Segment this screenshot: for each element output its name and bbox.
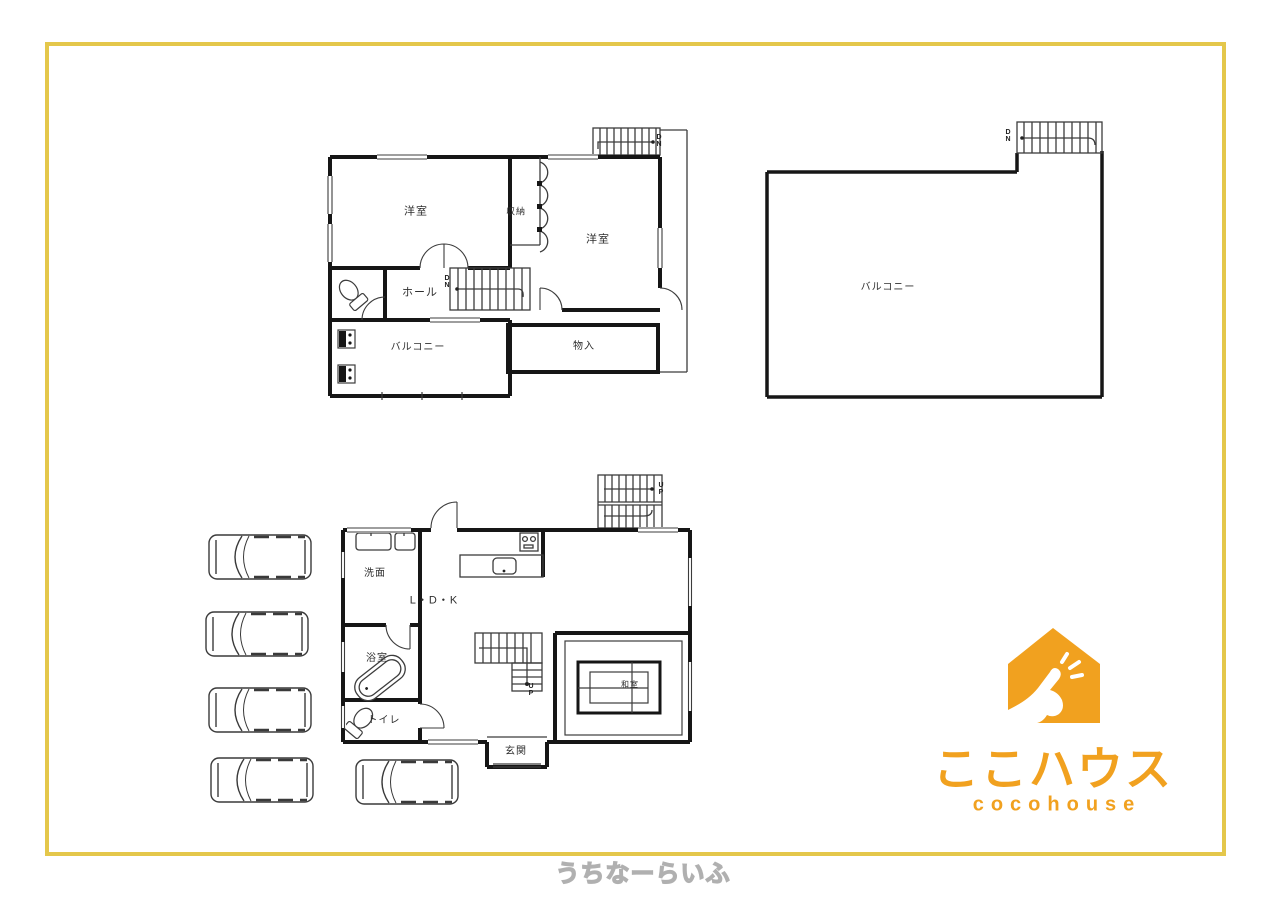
label-stairs-up-external-1f: UP — [658, 482, 665, 496]
logo-name-japanese: ここハウス — [933, 733, 1173, 799]
car — [356, 760, 458, 804]
label-toilet-1f: トイレ — [368, 716, 401, 726]
second-floor-plan — [322, 118, 694, 410]
label-bedroom-b-2f: 洋室 — [586, 235, 610, 246]
parking-cars — [200, 528, 470, 813]
label-stairs-dn-external-2f: DN — [656, 134, 663, 148]
car — [206, 612, 308, 656]
logo-house-click-icon — [1000, 622, 1110, 730]
label-storage-2f: 物入 — [573, 342, 595, 352]
label-stairs-dn-internal-2f: DN — [444, 275, 451, 289]
car — [211, 758, 313, 802]
label-closet-2f: 収納 — [506, 208, 526, 217]
label-entrance-1f: 玄関 — [505, 747, 527, 757]
label-washroom-1f: 洗面 — [364, 569, 386, 579]
car — [209, 535, 311, 579]
label-hall-2f: ホール — [402, 288, 438, 299]
label-stairs-dn-roof: DN — [1005, 129, 1012, 143]
label-balcony-roof: バルコニー — [861, 283, 916, 293]
label-ldk-1f: L・D・K — [410, 596, 458, 607]
site-watermark: うちなーらいふ — [556, 854, 731, 889]
roof-balcony-plan — [758, 113, 1108, 405]
label-stairs-up-internal-1f: UP — [528, 683, 535, 697]
car — [209, 688, 311, 732]
logo-name-english: cocohouse — [973, 794, 1142, 817]
floorplan-flyer: 洋室 収納 洋室 ホール バルコニー 物入 DN DN バルコニー DN 洗面 … — [0, 0, 1280, 906]
label-balcony-2f: バルコニー — [391, 343, 446, 353]
label-japanese-room-1f: 和室 — [621, 681, 639, 689]
label-bedroom-a-2f: 洋室 — [404, 207, 428, 218]
label-bathroom-1f: 浴室 — [366, 654, 388, 664]
